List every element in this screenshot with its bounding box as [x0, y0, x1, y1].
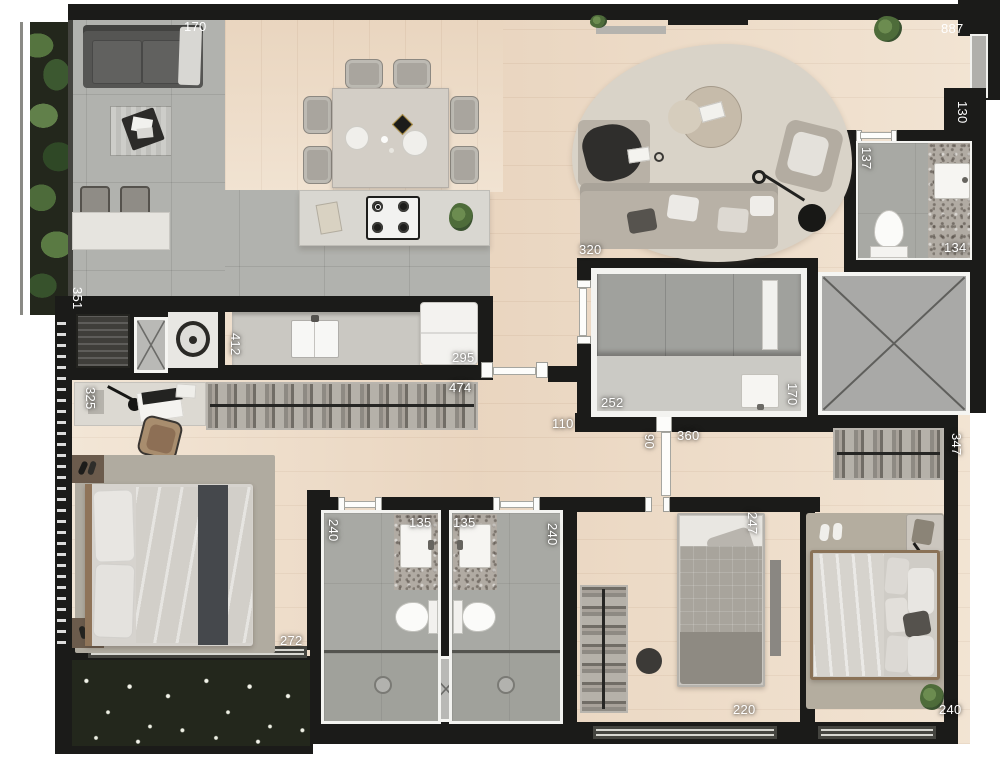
faucet [962, 177, 968, 183]
dimension-label: 887 [941, 22, 964, 35]
desk-notepad [176, 383, 197, 398]
tray-papers [137, 127, 154, 139]
door-jamb [577, 336, 591, 344]
dining-chair [303, 146, 332, 184]
toilet [874, 210, 904, 248]
dimension-label: 220 [733, 703, 756, 716]
wall [970, 274, 986, 413]
wardrobe-rod [602, 589, 605, 709]
window-bedroom3 [818, 726, 936, 739]
dimension-label: 360 [677, 429, 700, 442]
bed-pillow [93, 489, 135, 562]
wall [944, 413, 958, 744]
plate [345, 126, 369, 150]
planter-left [30, 22, 68, 315]
sofa-cushion [92, 40, 142, 84]
wall [548, 366, 577, 382]
dining-chair [450, 146, 479, 184]
vanity-sink [459, 524, 491, 568]
bed-pillow [908, 636, 934, 676]
dimension-label: 90 [643, 434, 656, 449]
service-tall-cabinet [762, 280, 778, 350]
dimension-label: 110 [552, 417, 574, 430]
wall [670, 497, 820, 512]
headphones [654, 152, 664, 162]
dining-chair [393, 59, 431, 89]
shower-drain [374, 676, 392, 694]
dimension-label: 134 [944, 241, 967, 254]
dimension-label: 347 [950, 433, 963, 456]
bed-pillow [884, 557, 910, 595]
toilet-tank [870, 246, 908, 258]
bed-pillow [908, 568, 934, 614]
bed-pillow [93, 563, 136, 638]
burner-ring [375, 204, 381, 210]
dimension-label: 325 [84, 387, 97, 410]
window-bedroom2 [593, 726, 777, 739]
laundry-sink [741, 374, 779, 408]
fridge-seam [421, 332, 477, 334]
faucet [757, 404, 764, 410]
toilet-tank [428, 600, 438, 634]
toilet [462, 602, 496, 632]
dining-chair [303, 96, 332, 134]
dimension-label: 295 [452, 351, 475, 364]
sink-divider [314, 321, 315, 357]
wall [561, 512, 577, 742]
floor-cushion [636, 648, 662, 674]
dimension-label: 135 [453, 516, 476, 529]
wall [575, 497, 645, 512]
balcony-edge-line [20, 22, 23, 315]
burner [398, 222, 409, 233]
bed-headboard [85, 484, 92, 646]
burner [372, 222, 383, 233]
door-leaf [500, 501, 534, 508]
dimension-label: 240 [327, 519, 340, 542]
bed-duvet [136, 487, 252, 643]
dimension-label: 272 [280, 634, 303, 647]
window-frame-left [68, 18, 73, 296]
dimension-label: 240 [939, 703, 962, 716]
washer-dot [189, 336, 197, 344]
bed-pillow-dark [902, 610, 932, 638]
elevator-shaft [818, 272, 970, 415]
door-jamb [577, 280, 591, 288]
door-leaf [344, 501, 376, 508]
cup [381, 136, 388, 143]
dimension-label: 320 [579, 243, 602, 256]
wall-console [770, 560, 781, 656]
dining-chair [345, 59, 383, 89]
media-console [596, 26, 666, 34]
sofa-throw [178, 27, 202, 86]
floor-grate [76, 314, 130, 368]
dimension-label: 252 [601, 396, 624, 409]
wall [68, 365, 493, 380]
kitchen-sink [291, 320, 339, 358]
toilet [395, 602, 429, 632]
door-leaf [493, 367, 536, 375]
sofa-cushion [666, 194, 699, 222]
wardrobe-rod [837, 452, 940, 455]
dimension-label: 135 [409, 516, 432, 529]
dimension-label: 412 [229, 333, 242, 356]
bed-duvet [814, 554, 884, 676]
slippers [832, 523, 842, 541]
bed-runner [198, 485, 228, 645]
dimension-label: 474 [449, 381, 472, 394]
apartment-floor-plan: 170 887 130 137 134 320 351 412 295 474 … [0, 0, 1000, 766]
bed-foot-blanket [680, 632, 762, 684]
wall [310, 722, 577, 744]
door-jamb [481, 362, 493, 378]
dimension-label: 247 [746, 512, 759, 535]
dimension-label: 170 [786, 383, 799, 406]
wall-hatch [57, 322, 66, 644]
sofa-cushion [717, 207, 749, 234]
faucet [428, 540, 434, 550]
burner [398, 201, 409, 212]
sofa-cushion [750, 196, 774, 216]
door-jamb [536, 362, 548, 378]
plate [402, 130, 428, 156]
faucet [457, 540, 463, 550]
dining-chair [450, 96, 479, 134]
faucet [311, 315, 319, 322]
elevator-x-icon [822, 276, 966, 411]
door-leaf [579, 288, 587, 336]
bed-pillow [884, 635, 909, 673]
dimension-label: 170 [184, 20, 207, 33]
console-table [72, 212, 170, 250]
wardrobe-rod [210, 404, 474, 407]
wall [68, 4, 970, 20]
coffee-table-round-small [668, 100, 702, 134]
door-leaf [860, 132, 892, 139]
wall [986, 0, 1000, 100]
shower-drain [497, 676, 515, 694]
door-jamb [663, 497, 670, 512]
tv-panel [668, 20, 748, 25]
floor-lamp-shade [798, 204, 826, 232]
door-leaf [661, 432, 671, 496]
dimension-label: 137 [860, 147, 873, 170]
door-jamb [645, 497, 652, 512]
dimension-label: 351 [71, 287, 84, 310]
dimension-label: 130 [956, 101, 969, 124]
dimension-label: 240 [546, 523, 559, 546]
shaft-x-icon [137, 320, 165, 370]
cup [389, 148, 394, 153]
garden-bed [72, 660, 310, 746]
duct-shaft [134, 317, 168, 373]
